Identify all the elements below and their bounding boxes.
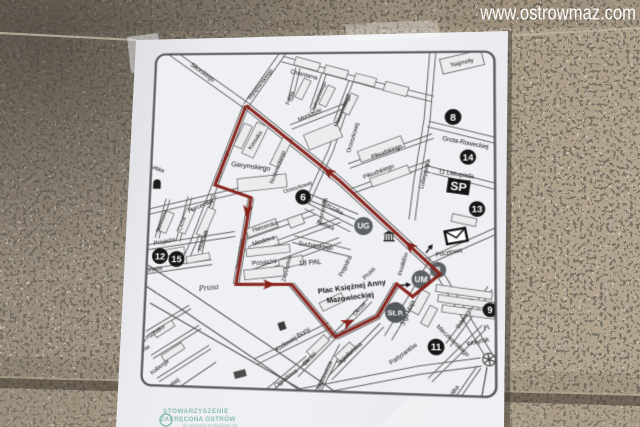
svg-text:UM: UM: [415, 275, 428, 285]
svg-text:St.P.: St.P.: [387, 310, 404, 318]
svg-text:UG: UG: [357, 221, 370, 231]
svg-text:15: 15: [171, 254, 182, 265]
svg-text:6: 6: [300, 192, 306, 204]
svg-text:ZAKRĘCONA OSTRÓW: ZAKRĘCONA OSTRÓW: [160, 415, 235, 423]
svg-text:9: 9: [487, 305, 493, 315]
svg-text:11: 11: [431, 341, 442, 353]
svg-text:www.ostrowmaz.com: www.ostrowmaz.com: [479, 1, 636, 24]
svg-text:8: 8: [450, 112, 456, 124]
svg-text:SP: SP: [449, 180, 467, 195]
svg-text:13: 13: [472, 204, 483, 215]
svg-text:18 PAL: 18 PAL: [299, 258, 323, 267]
svg-text:ul. Henryka Trębickiego 10: ul. Henryka Trębickiego 10: [183, 423, 238, 427]
svg-text:12: 12: [155, 251, 166, 262]
svg-text:STOWARZYSZENIE: STOWARZYSZENIE: [163, 408, 229, 415]
svg-text:14: 14: [463, 152, 474, 163]
